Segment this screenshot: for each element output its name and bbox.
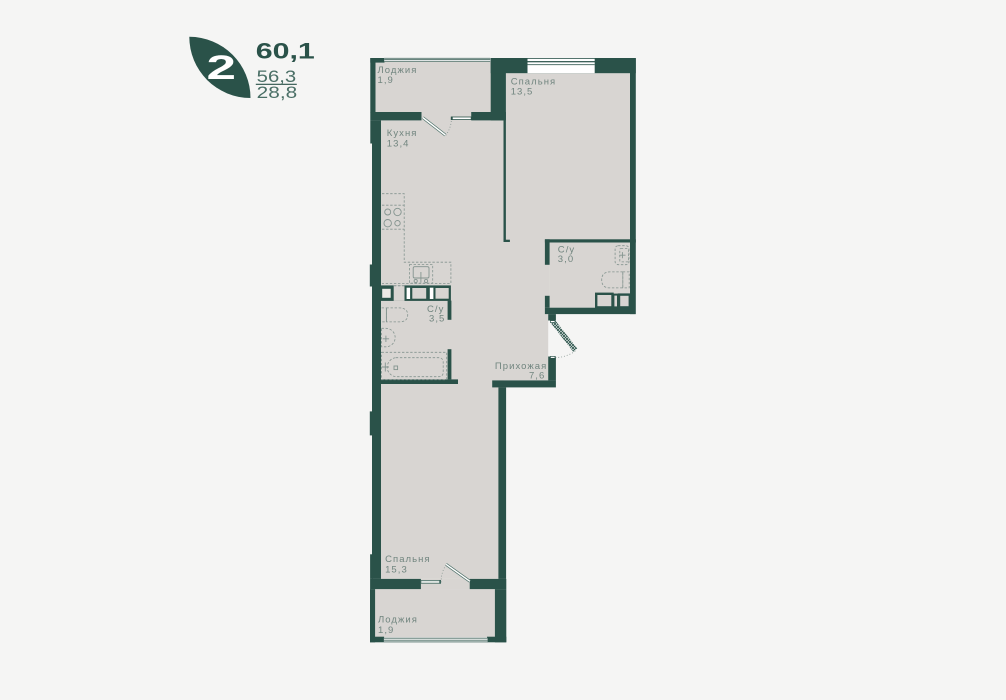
svg-text:7,6: 7,6: [529, 370, 545, 381]
svg-text:3,5: 3,5: [429, 313, 445, 324]
svg-text:3,0: 3,0: [558, 254, 574, 265]
svg-text:15,3: 15,3: [385, 564, 408, 575]
svg-text:Спальня: Спальня: [511, 76, 557, 87]
svg-text:13,5: 13,5: [511, 87, 534, 98]
svg-text:60,1: 60,1: [256, 39, 315, 64]
svg-text:1,9: 1,9: [378, 75, 394, 86]
svg-text:1,9: 1,9: [378, 625, 394, 636]
svg-text:Лоджия: Лоджия: [378, 614, 418, 625]
svg-text:2: 2: [207, 49, 237, 87]
svg-text:13,4: 13,4: [387, 138, 410, 149]
svg-text:28,8: 28,8: [257, 83, 298, 102]
